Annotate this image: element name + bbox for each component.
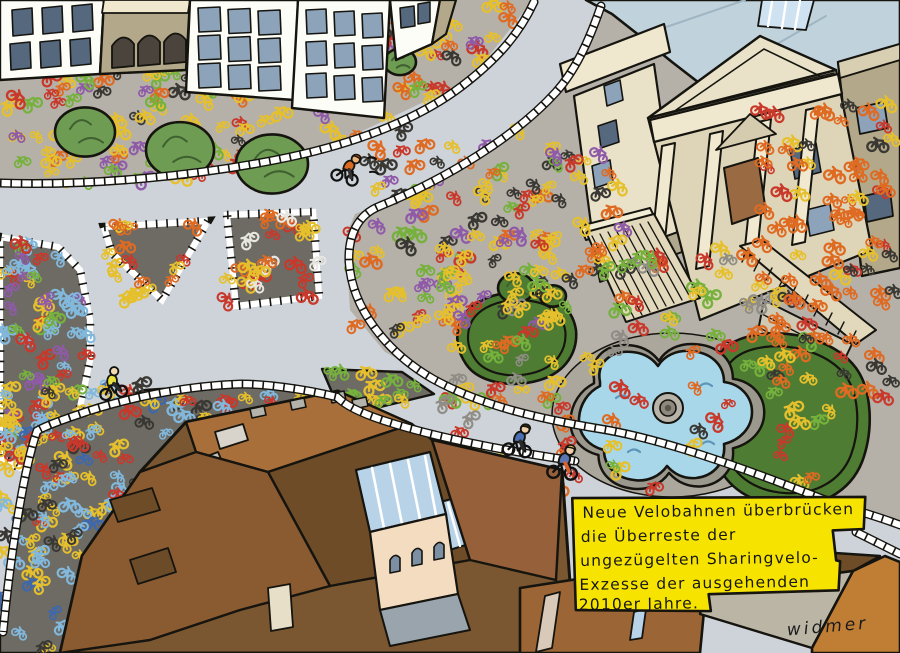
caption-line-4: Exzesse der ausgehenden xyxy=(579,573,810,594)
cartoon-illustration: Neue Velobahnen überbrücken die Überrest… xyxy=(0,0,900,653)
caption-line-3: ungezügelten Sharingvelo- xyxy=(580,549,819,570)
caption-line-5: 2010er Jahre. xyxy=(579,594,700,614)
caption-line-2: die Überreste der xyxy=(581,525,737,546)
caption-line-1: Neue Velobahnen überbrücken xyxy=(582,500,854,522)
cartoon-page: Neue Velobahnen überbrücken die Überrest… xyxy=(0,0,900,653)
